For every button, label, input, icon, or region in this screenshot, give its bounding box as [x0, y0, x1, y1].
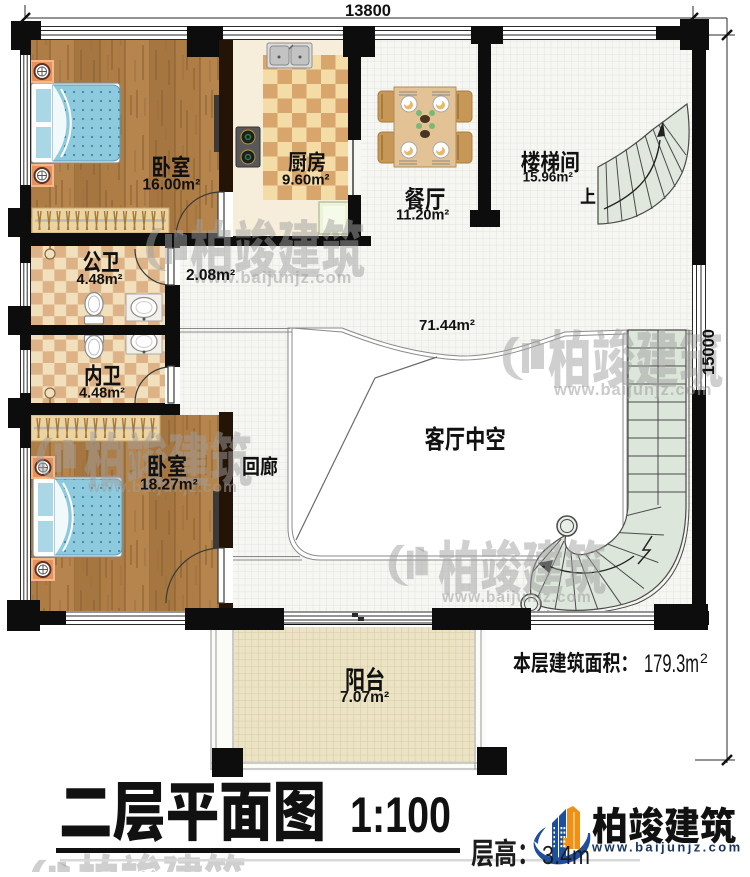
svg-text:3.4m: 3.4m [542, 840, 590, 870]
svg-text:13800: 13800 [345, 2, 391, 20]
svg-text:1:100: 1:100 [350, 787, 451, 843]
svg-text:www.baijunjz.com: www.baijunjz.com [441, 589, 592, 606]
svg-text:4.48m²: 4.48m² [79, 386, 125, 402]
svg-text:15000: 15000 [700, 329, 718, 375]
svg-text:2.08m²: 2.08m² [186, 267, 235, 284]
svg-text:18.27m²: 18.27m² [140, 477, 198, 494]
svg-text:16.00m²: 16.00m² [143, 177, 201, 194]
svg-text:71.44m²: 71.44m² [419, 317, 475, 334]
svg-text:www.baijunjz.com: www.baijunjz.com [553, 381, 712, 399]
svg-text:2: 2 [700, 650, 708, 666]
svg-text:4.48m²: 4.48m² [77, 272, 123, 288]
svg-text:7.07m²: 7.07m² [340, 689, 389, 706]
svg-text:179.3m: 179.3m [644, 650, 699, 678]
svg-text:9.60m²: 9.60m² [282, 172, 330, 189]
svg-text:15.96m²: 15.96m² [523, 170, 574, 185]
svg-text:11.20m²: 11.20m² [396, 208, 449, 224]
svg-text:www.baijunjz.com: www.baijunjz.com [591, 840, 743, 855]
